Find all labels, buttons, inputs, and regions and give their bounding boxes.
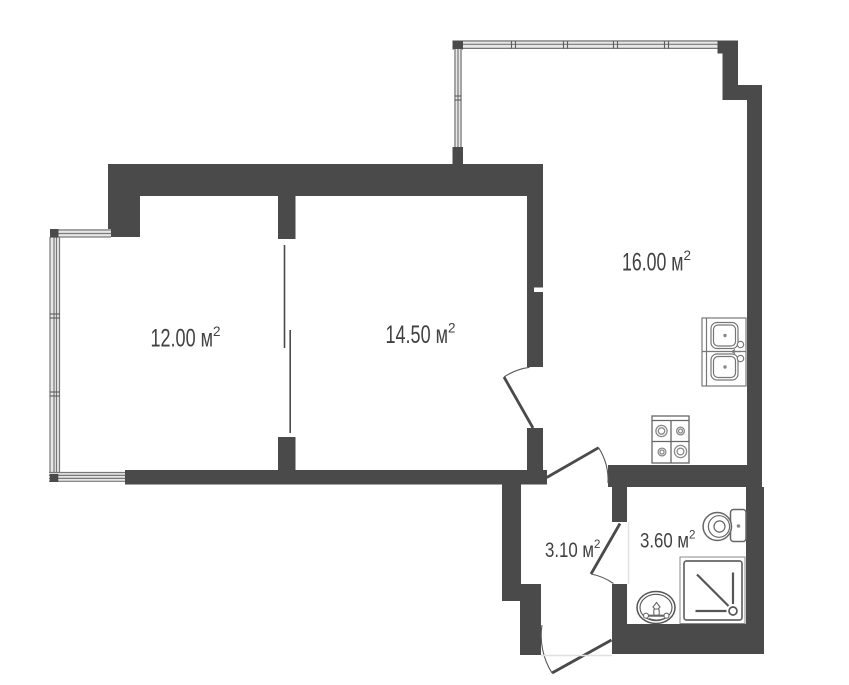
svg-text:12.00 м: 12.00 м — [151, 325, 214, 353]
svg-text:14.50 м: 14.50 м — [386, 321, 449, 349]
svg-text:2: 2 — [689, 530, 695, 542]
svg-text:2: 2 — [448, 321, 456, 336]
svg-text:2: 2 — [213, 324, 221, 339]
svg-text:3.60 м: 3.60 м — [640, 530, 689, 553]
svg-text:16.00 м: 16.00 м — [622, 249, 684, 277]
svg-text:2: 2 — [594, 539, 600, 551]
svg-text:3.10 м: 3.10 м — [545, 539, 594, 562]
svg-text:2: 2 — [684, 248, 692, 263]
